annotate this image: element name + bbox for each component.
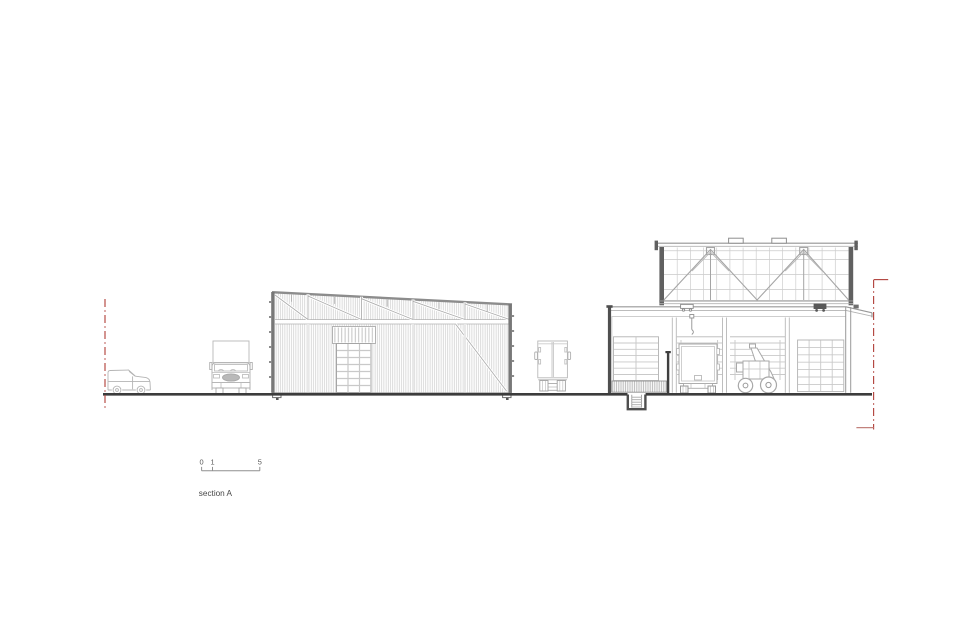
section-drawing: 0 1 5 section A — [0, 0, 960, 639]
upper-post-left — [659, 247, 664, 305]
box-truck-rear-view — [535, 341, 571, 391]
clerestory-truss-volume — [655, 238, 858, 312]
warehouse-door-header-louvres — [334, 328, 375, 343]
scale-tick-label-5: 5 — [258, 457, 262, 466]
chain-hoist — [690, 315, 694, 335]
loading-dock-hatch — [612, 381, 667, 392]
upper-mullions — [677, 248, 835, 301]
delivery-van-side-view — [108, 370, 150, 394]
workshop-right-wall — [846, 307, 851, 393]
scale-bar: 0 1 5 — [200, 457, 262, 470]
architectural-section-sheet: 0 1 5 section A — [0, 0, 960, 639]
stair-pit — [628, 395, 646, 410]
warehouse-column-left — [271, 292, 274, 393]
skylight-curbs — [729, 238, 787, 243]
drawing-caption: section A — [199, 489, 233, 498]
warehouse-sectional-door — [337, 344, 372, 393]
workshop-eaves-line-2 — [608, 310, 872, 316]
gutter-detail — [854, 305, 859, 309]
roller-door-bay1 — [614, 337, 659, 381]
truck-front-view — [210, 341, 253, 394]
scale-tick-label-1: 1 — [210, 457, 214, 466]
site-boundary-line-right — [874, 280, 889, 430]
workshop-cross-section — [606, 238, 872, 409]
upper-post-right — [849, 247, 854, 305]
warehouse-column-right — [508, 304, 511, 393]
box-truck-in-bay — [677, 344, 720, 393]
roller-door-bay4 — [798, 340, 844, 392]
workshop-eaves-line — [607, 307, 873, 313]
scale-tick-label-0: 0 — [200, 457, 204, 466]
warehouse-elevation — [269, 292, 514, 400]
